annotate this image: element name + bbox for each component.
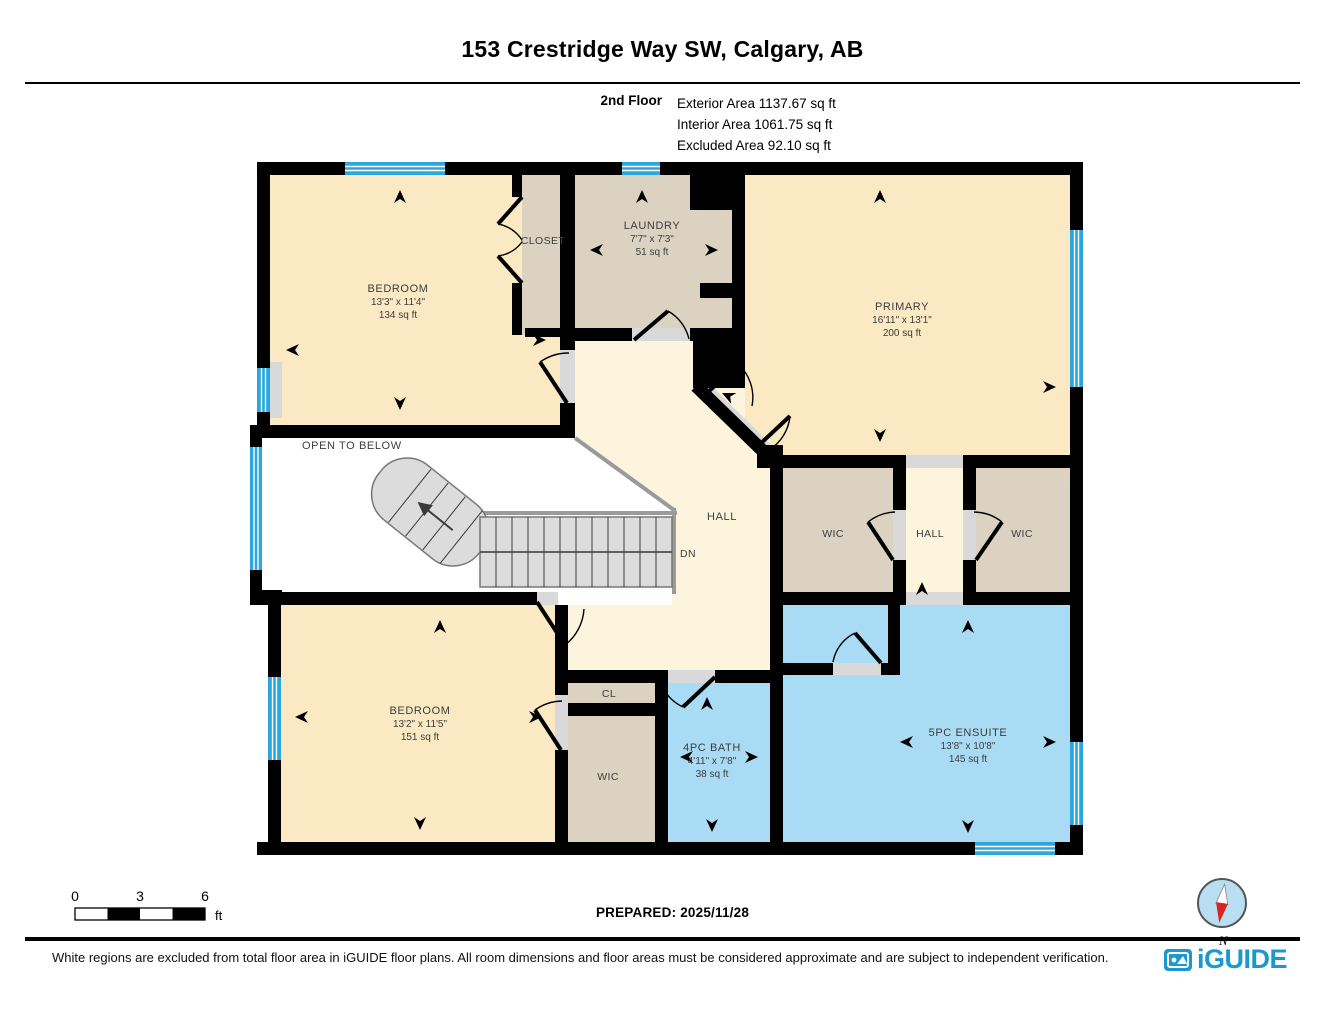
room-label-bedroom-tl: BEDROOM — [367, 283, 428, 295]
floor-label: 2nd Floor — [480, 93, 662, 108]
room-dims-bath: 4'11" x 7'8" — [688, 756, 737, 767]
iguide-logo-text: iGUIDE — [1197, 944, 1287, 975]
room-dims-bedroom-bl: 13'2" x 11'5" — [393, 719, 448, 730]
exterior-area: Exterior Area 1137.67 sq ft — [677, 96, 836, 111]
iguide-logo-icon — [1163, 947, 1193, 973]
room-area-laundry: 51 sq ft — [636, 247, 669, 258]
room-label-bedroom-bl: BEDROOM — [389, 705, 450, 717]
room-dims-ensuite: 13'8" x 10'8" — [941, 741, 996, 752]
floorplan-svg: BEDROOM 13'3" x 11'4" 134 sq ft CLOSET L… — [240, 150, 1090, 870]
room-label-cl: CL — [602, 688, 616, 700]
room-dims-bedroom-tl: 13'3" x 11'4" — [371, 297, 426, 308]
room-area-bath: 38 sq ft — [696, 769, 729, 780]
room-label-hall-small: HALL — [916, 528, 944, 540]
interior-area: Interior Area 1061.75 sq ft — [677, 117, 832, 132]
label-open-to-below: OPEN TO BELOW — [302, 440, 402, 452]
scale-tick-0: 0 — [71, 888, 79, 904]
header-divider — [25, 82, 1300, 84]
scale-bar: 0 3 6 ft — [60, 885, 260, 935]
room-label-bath: 4PC BATH — [683, 742, 741, 754]
iguide-logo: iGUIDE — [1163, 944, 1287, 975]
room-area-primary: 200 sq ft — [883, 328, 922, 339]
room-label-wic-left: WIC — [822, 528, 844, 540]
room-area-bedroom-bl: 151 sq ft — [401, 732, 440, 743]
room-label-closet: CLOSET — [521, 235, 566, 247]
stair-flight-run — [480, 517, 672, 587]
area-summary: Exterior Area 1137.67 sq ftInterior Area… — [677, 93, 836, 156]
floorplan-drawing: BEDROOM 13'3" x 11'4" 134 sq ft CLOSET L… — [240, 150, 1090, 870]
footer-disclaimer: White regions are excluded from total fl… — [52, 950, 1108, 965]
room-dims-primary: 16'11" x 13'1" — [872, 315, 932, 326]
room-label-wic-right: WIC — [1011, 528, 1033, 540]
room-area-ensuite: 145 sq ft — [949, 754, 988, 765]
room-label-hall-main: HALL — [707, 511, 737, 523]
scale-tick-3: 3 — [136, 888, 144, 904]
room-label-laundry: LAUNDRY — [624, 220, 681, 232]
room-dims-laundry: 7'7" x 7'3" — [630, 234, 674, 245]
stairs-dn-label: DN — [680, 548, 696, 560]
room-label-primary: PRIMARY — [875, 301, 929, 313]
footer-divider — [25, 937, 1300, 941]
prepared-date: PREPARED: 2025/11/28 — [500, 905, 845, 920]
room-label-ensuite: 5PC ENSUITE — [929, 727, 1008, 739]
floorplan-page: 153 Crestridge Way SW, Calgary, AB 2nd F… — [0, 0, 1325, 1024]
room-label-wic-bottom: WIC — [597, 771, 619, 783]
room-area-bedroom-tl: 134 sq ft — [379, 310, 418, 321]
scale-tick-6: 6 — [201, 888, 209, 904]
page-title: 153 Crestridge Way SW, Calgary, AB — [0, 36, 1325, 63]
scale-unit: ft — [215, 908, 223, 923]
